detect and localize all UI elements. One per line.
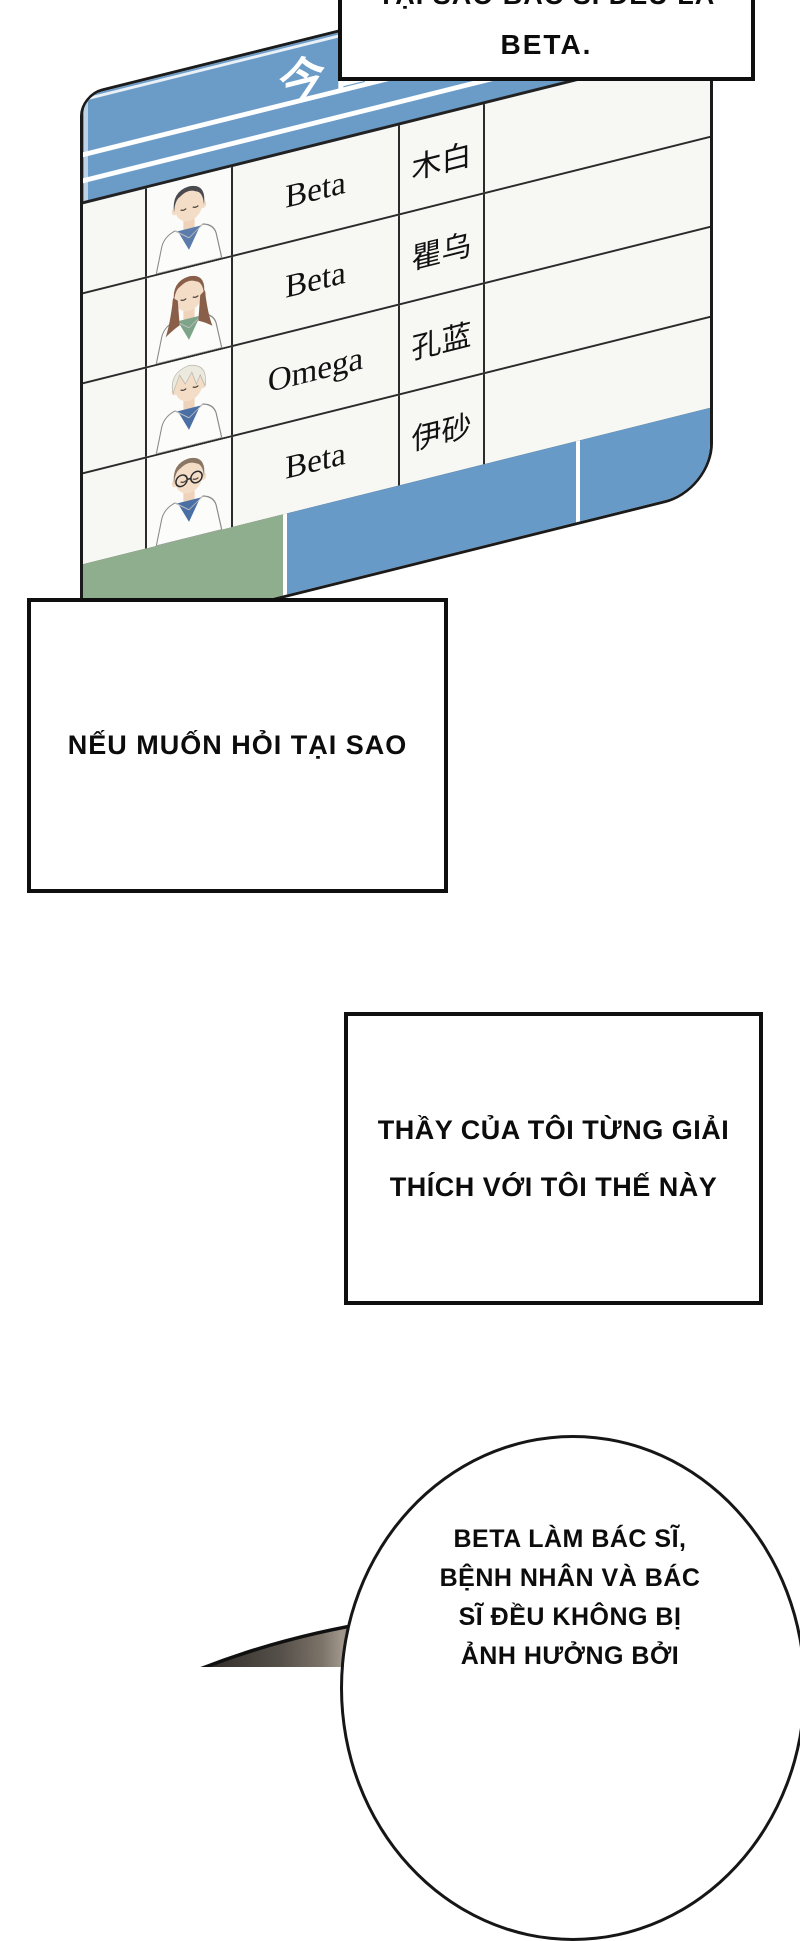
- text-line: BỆNH NHÂN VÀ BÁC: [370, 1559, 770, 1598]
- board-edge-highlight: [84, 95, 88, 201]
- caption-box-top: TẠI SAO BÁC SĨ ĐỀU LÀ BETA.: [338, 0, 755, 81]
- text-line: THÍCH VỚI TÔI THẾ NÀY: [390, 1159, 718, 1216]
- text-line: ẢNH HƯỞNG BỞI: [370, 1637, 770, 1676]
- speech-bubble: [340, 1435, 800, 1941]
- footer-divider-line: [576, 440, 580, 528]
- schedule-cell-blank: [83, 279, 145, 382]
- schedule-cell-blank: [83, 189, 145, 292]
- speech-bubble-text: BETA LÀM BÁC SĨ,BỆNH NHÂN VÀ BÁCSĨ ĐỀU K…: [370, 1520, 770, 1676]
- text-line: THẦY CỦA TÔI TỪNG GIẢI: [378, 1102, 729, 1159]
- schedule-cell-blank: [83, 369, 145, 472]
- duty-schedule-board: 今日 Beta 木白 Beta 瞿乌 Omega 孔蓝 Beta 伊砂: [80, 0, 713, 649]
- caption-box-1: NẾU MUỐN HỎI TẠI SAO: [27, 598, 448, 893]
- text-line: BETA LÀM BÁC SĨ,: [370, 1520, 770, 1559]
- caption-box-2: THẦY CỦA TÔI TỪNG GIẢITHÍCH VỚI TÔI THẾ …: [344, 1012, 763, 1305]
- caption-text: NẾU MUỐN HỎI TẠI SAO: [68, 730, 408, 761]
- text-line: SĨ ĐỀU KHÔNG BỊ: [370, 1598, 770, 1637]
- schedule-cell-blank: [83, 459, 145, 564]
- caption-partial-line: TẠI SAO BÁC SĨ ĐỀU LÀ: [342, 0, 751, 11]
- caption-main-line: BETA.: [342, 29, 751, 61]
